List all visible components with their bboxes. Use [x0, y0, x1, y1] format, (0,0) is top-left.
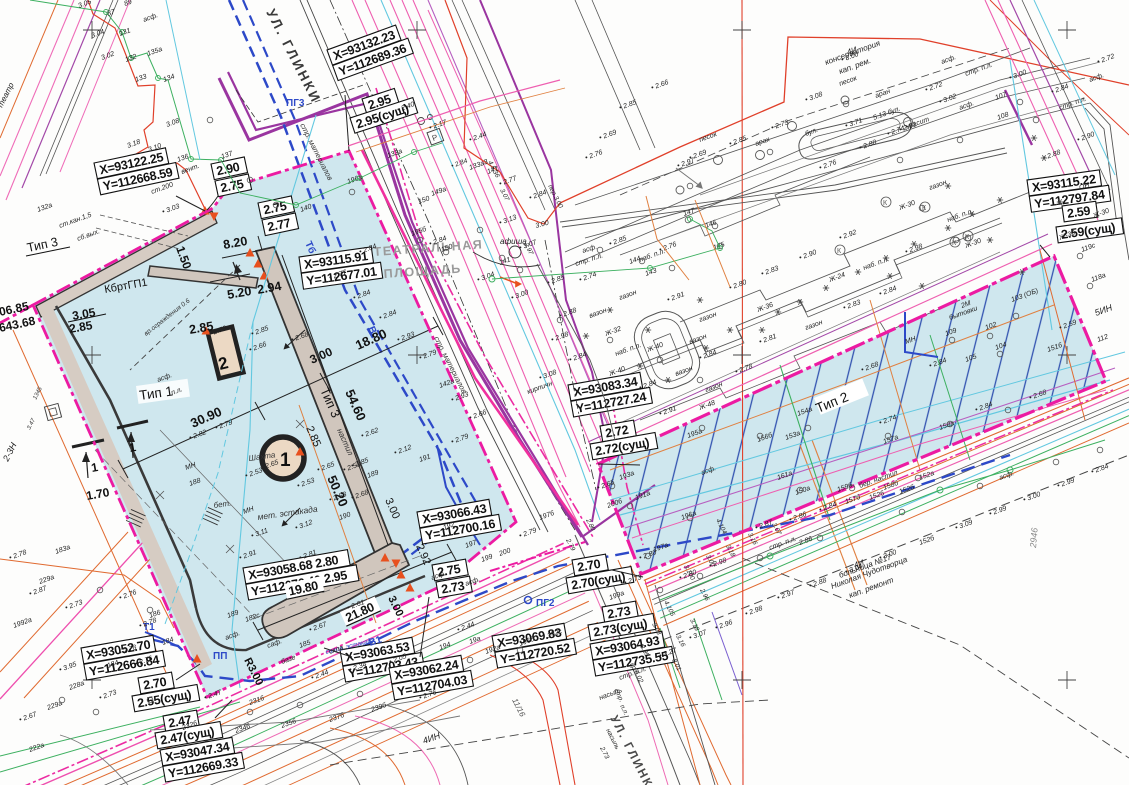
svg-text:2946: 2946 — [1028, 527, 1040, 549]
svg-text:ПГ2: ПГ2 — [536, 598, 555, 609]
svg-text:ПП: ПП — [213, 651, 227, 662]
svg-text:ПГ3: ПГ3 — [286, 98, 305, 109]
svg-text:1: 1 — [280, 450, 291, 471]
